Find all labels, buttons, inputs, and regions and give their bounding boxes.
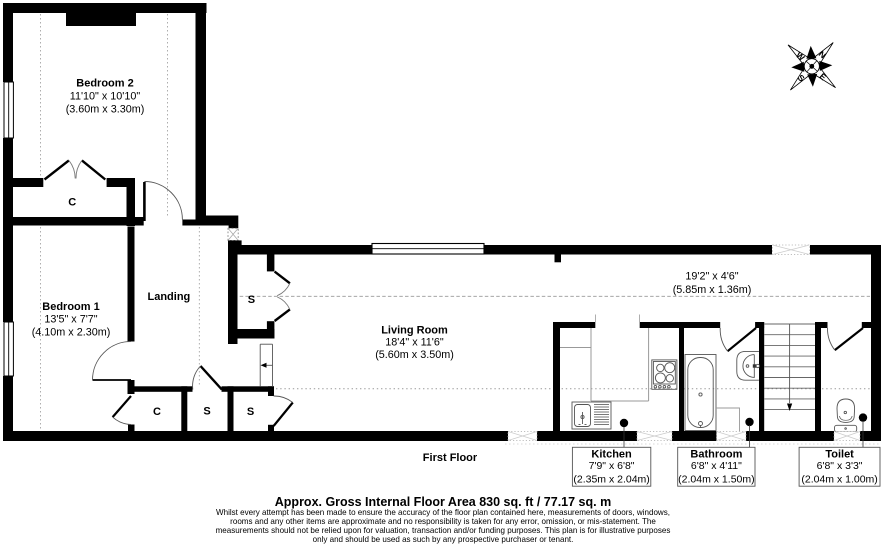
- svg-text:(2.04m x 1.50m): (2.04m x 1.50m): [678, 473, 754, 485]
- svg-text:Toilet: Toilet: [825, 449, 854, 461]
- svg-text:Living Room: Living Room: [381, 324, 448, 336]
- svg-text:C: C: [68, 197, 76, 209]
- svg-text:11'10" x 10'10": 11'10" x 10'10": [70, 91, 141, 103]
- svg-text:(5.60m x 3.50m): (5.60m x 3.50m): [375, 349, 454, 361]
- svg-text:only and should be used as suc: only and should be used as such by any p…: [313, 535, 574, 544]
- svg-text:(5.85m x 1.36m): (5.85m x 1.36m): [673, 284, 752, 296]
- svg-text:6'8" x 4'11": 6'8" x 4'11": [691, 460, 742, 472]
- svg-text:Kitchen: Kitchen: [591, 449, 632, 461]
- svg-text:18'4" x 11'6": 18'4" x 11'6": [385, 337, 444, 349]
- svg-text:(2.04m x 1.00m): (2.04m x 1.00m): [801, 473, 877, 485]
- svg-text:(3.60m x 3.30m): (3.60m x 3.30m): [66, 104, 145, 116]
- svg-text:Whilst every attempt has been: Whilst every attempt has been made to en…: [216, 508, 670, 517]
- svg-text:13'5" x 7'7": 13'5" x 7'7": [44, 314, 97, 326]
- svg-text:measurements should not be rel: measurements should not be relied upon f…: [216, 526, 671, 535]
- svg-text:6'8" x 3'3": 6'8" x 3'3": [817, 460, 863, 472]
- svg-text:Bedroom 1: Bedroom 1: [42, 301, 99, 313]
- svg-text:Approx. Gross Internal Floor A: Approx. Gross Internal Floor Area 830 sq…: [275, 495, 611, 509]
- svg-text:Bathroom: Bathroom: [690, 449, 742, 461]
- svg-text:19'2" x 4'6": 19'2" x 4'6": [685, 271, 738, 283]
- svg-text:7'9" x 6'8": 7'9" x 6'8": [589, 460, 635, 472]
- svg-text:Landing: Landing: [148, 291, 191, 303]
- svg-text:Bedroom 2: Bedroom 2: [76, 78, 133, 90]
- svg-text:(4.10m x 2.30m): (4.10m x 2.30m): [32, 327, 111, 339]
- svg-text:rooms and any other items are: rooms and any other items are approximat…: [230, 517, 656, 526]
- svg-text:S: S: [203, 405, 210, 417]
- svg-text:S: S: [247, 406, 254, 418]
- svg-text:S: S: [248, 294, 255, 306]
- svg-text:C: C: [153, 406, 161, 418]
- svg-text:(2.35m x 2.04m): (2.35m x 2.04m): [573, 473, 649, 485]
- svg-text:First Floor: First Floor: [423, 452, 478, 464]
